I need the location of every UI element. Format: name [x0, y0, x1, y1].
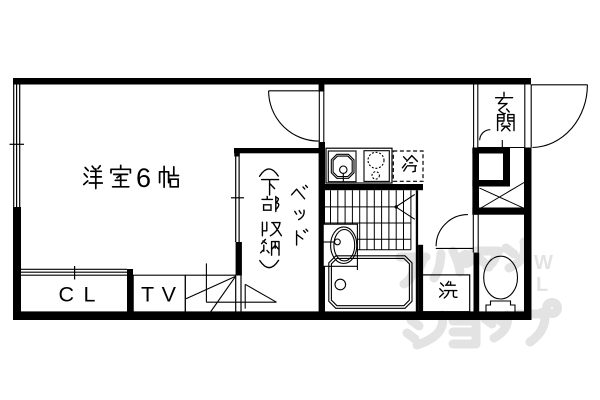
svg-text:TV: TV — [141, 282, 183, 306]
svg-text:o: o — [536, 302, 548, 324]
svg-text:6: 6 — [136, 163, 151, 193]
svg-text:W: W — [534, 252, 553, 274]
svg-text:CL: CL — [59, 282, 105, 306]
svg-text:L: L — [536, 274, 548, 296]
